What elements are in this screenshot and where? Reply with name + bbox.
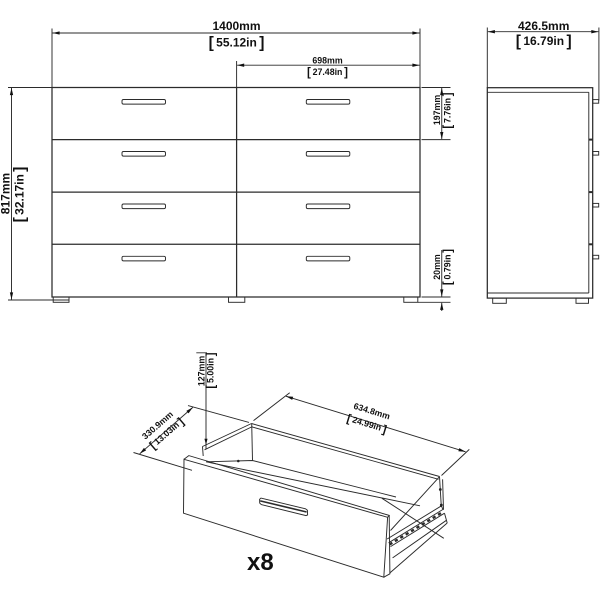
svg-text:[ 32.17in ]: [ 32.17in ] bbox=[12, 167, 29, 223]
svg-text:817mm: 817mm bbox=[0, 173, 13, 214]
svg-text:426.5mm: 426.5mm bbox=[518, 19, 569, 33]
svg-text:20mm: 20mm bbox=[432, 254, 442, 280]
svg-text:[ 0.79in ]: [ 0.79in ] bbox=[443, 249, 455, 285]
svg-text:[ 16.79in ]: [ 16.79in ] bbox=[516, 33, 572, 50]
svg-text:197mm: 197mm bbox=[432, 95, 442, 125]
svg-text:[ 55.12in ]: [ 55.12in ] bbox=[209, 35, 265, 52]
svg-text:[ 7.76in ]: [ 7.76in ] bbox=[443, 92, 455, 128]
svg-text:[ 27.48in ]: [ 27.48in ] bbox=[307, 67, 348, 79]
svg-text:x8: x8 bbox=[247, 549, 274, 576]
svg-text:[ 5.00in ]: [ 5.00in ] bbox=[206, 352, 218, 388]
svg-text:1400mm: 1400mm bbox=[212, 19, 260, 33]
svg-text:698mm: 698mm bbox=[312, 56, 342, 66]
